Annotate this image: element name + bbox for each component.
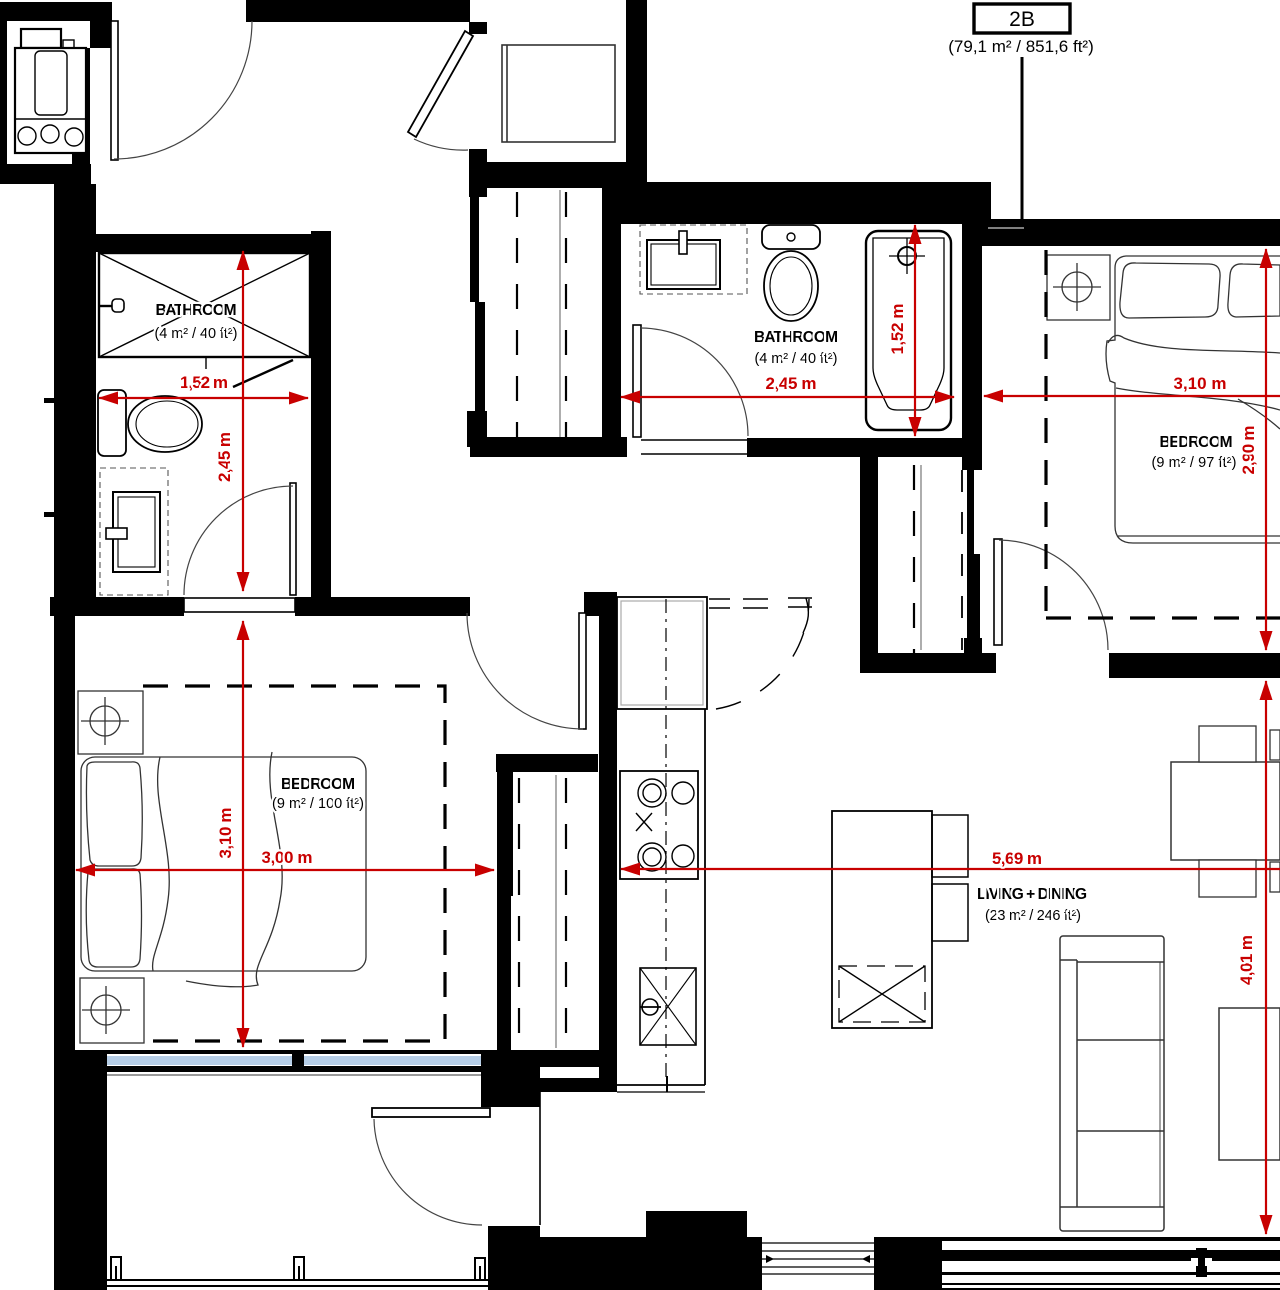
svg-text:(4 m² / 40 ft²): (4 m² / 40 ft²)	[155, 326, 238, 342]
svg-text:(23 m² / 246 ft²): (23 m² / 246 ft²)	[985, 908, 1081, 924]
svg-text:5,69 m: 5,69 m	[992, 849, 1042, 868]
svg-text:(9 m² / 100 ft²): (9 m² / 100 ft²)	[272, 796, 364, 812]
svg-text:4,01 m: 4,01 m	[1237, 935, 1256, 985]
svg-text:(9 m² / 97 ft²): (9 m² / 97 ft²)	[1152, 455, 1237, 471]
svg-text:2,45 m: 2,45 m	[766, 374, 817, 393]
svg-text:3,10 m: 3,10 m	[216, 808, 235, 859]
svg-text:2,90 m: 2,90 m	[1239, 426, 1258, 475]
svg-text:BATHROOM: BATHROOM	[754, 329, 838, 346]
svg-text:2,45 m: 2,45 m	[215, 432, 234, 482]
svg-text:1,52 m: 1,52 m	[888, 304, 907, 355]
svg-text:3,10 m: 3,10 m	[1174, 374, 1227, 393]
svg-text:1,52 m: 1,52 m	[180, 373, 228, 392]
svg-text:(4 m² / 40 ft²): (4 m² / 40 ft²)	[755, 351, 838, 367]
svg-text:3,00 m: 3,00 m	[262, 848, 313, 867]
svg-text:2B: 2B	[1009, 8, 1035, 31]
svg-text:BEDROOM: BEDROOM	[1160, 434, 1233, 451]
svg-text:(79,1 m² / 851,6 ft²): (79,1 m² / 851,6 ft²)	[948, 37, 1094, 56]
svg-text:BEDROOM: BEDROOM	[281, 776, 355, 793]
svg-text:BATHROOM: BATHROOM	[156, 302, 237, 319]
svg-text:LIVING + DINING: LIVING + DINING	[977, 886, 1087, 903]
